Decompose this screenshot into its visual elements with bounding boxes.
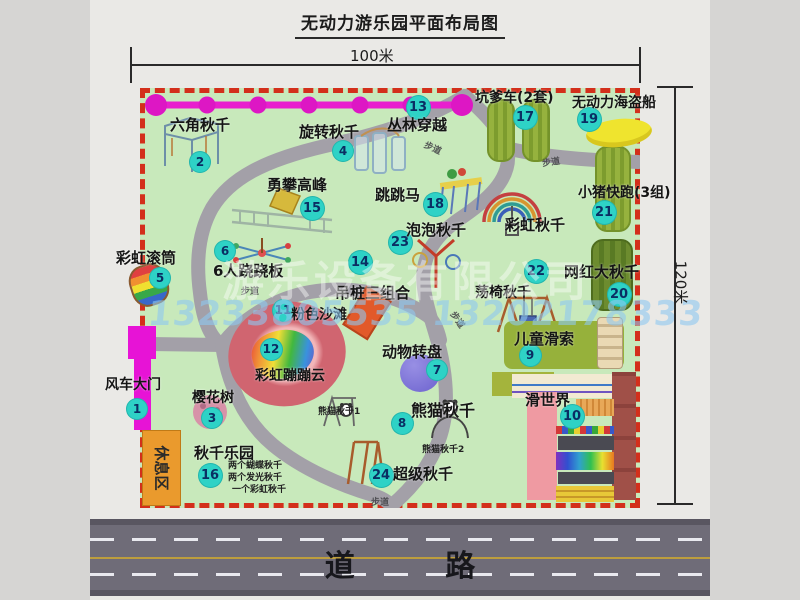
watermark-phone: 13233805535 13202178333 <box>146 294 705 334</box>
footpath-sign-4: 步道 <box>371 495 389 508</box>
dimension-tick-bottom <box>657 503 693 505</box>
attraction-badge-18: 18 <box>423 192 448 217</box>
attraction-badge-24: 24 <box>369 463 394 488</box>
attraction-badge-17: 17 <box>513 105 538 130</box>
attraction-badge-12: 12 <box>260 338 283 361</box>
attraction-label-24: 超级秋千 <box>393 463 453 484</box>
attraction-label-10: 滑世界 <box>525 389 570 410</box>
slide-world-wave-slide <box>556 486 614 502</box>
attraction-label-4: 旋转秋千 <box>299 121 359 142</box>
attraction-label-12: 彩虹蹦蹦云 <box>255 365 325 385</box>
panda-swing-1-label: 熊猫秋千1 <box>318 404 360 417</box>
attraction-badge-16: 16 <box>198 463 223 488</box>
road: 道 路 <box>90 519 710 596</box>
dimension-tick-top <box>657 86 693 88</box>
attraction-label-15: 勇攀高峰 <box>267 174 327 195</box>
rest-area-label: 休息区 <box>151 445 172 490</box>
slide-world-flags <box>556 426 614 434</box>
footpath-sign-2: 步道 <box>541 154 561 169</box>
attraction-label-8: 熊猫秋千 <box>411 397 475 421</box>
attraction-badge-3: 3 <box>201 407 223 429</box>
dimension-height-label: 120米 <box>670 261 691 305</box>
dimension-width-label: 100米 <box>350 45 394 66</box>
rainbow-swing-label: 彩虹秋千 <box>505 214 565 235</box>
attraction-label-5: 彩虹滚筒 <box>116 247 176 268</box>
attraction-label-13: 丛林穿越 <box>387 114 447 135</box>
attraction-badge-15: 15 <box>300 196 325 221</box>
panda-swing-2-label: 熊猫秋千2 <box>422 442 464 455</box>
attraction-label-17: 坑爹车(2套) <box>475 87 554 107</box>
attraction-label-16: 秋千乐园 <box>194 442 254 463</box>
attraction-badge-1: 1 <box>126 398 148 420</box>
slide-world-track-2 <box>558 472 614 484</box>
attraction-badge-5: 5 <box>149 267 171 289</box>
attraction-label-21: 小猪快跑(3组) <box>578 182 671 202</box>
attraction-label-18: 跳跳马 <box>375 184 420 205</box>
dimension-tick-right <box>639 47 641 83</box>
road-label: 道 路 <box>90 541 710 585</box>
slide-world-rainbow-slide <box>556 452 614 470</box>
attraction-label-2: 六角秋千 <box>170 114 230 135</box>
kengdie-car-track-1 <box>487 99 515 162</box>
slide-world-wall <box>612 372 636 500</box>
park-layout-map: 无动力游乐园平面布局图 100米 120米 <box>0 0 800 600</box>
attraction-label-1: 风车大门 <box>105 374 161 394</box>
attraction-badge-2: 2 <box>189 151 211 173</box>
rest-area: 休息区 <box>142 430 181 506</box>
dimension-tick-left <box>130 47 132 83</box>
attraction-label-7: 动物转盘 <box>382 341 442 362</box>
attraction-badge-7: 7 <box>426 359 448 381</box>
attraction-label-19: 无动力海盗船 <box>572 92 656 112</box>
attraction-label-3: 樱花树 <box>192 387 234 407</box>
swing-park-note-3: 一个彩虹秋千 <box>232 482 286 495</box>
attraction-label-23: 泡泡秋千 <box>406 219 466 240</box>
attraction-badge-4: 4 <box>332 140 354 162</box>
slide-world-track-1 <box>558 436 614 450</box>
attraction-badge-21: 21 <box>592 200 617 225</box>
page-title: 无动力游乐园平面布局图 <box>0 9 800 34</box>
rotating-swing-icon <box>355 129 405 174</box>
